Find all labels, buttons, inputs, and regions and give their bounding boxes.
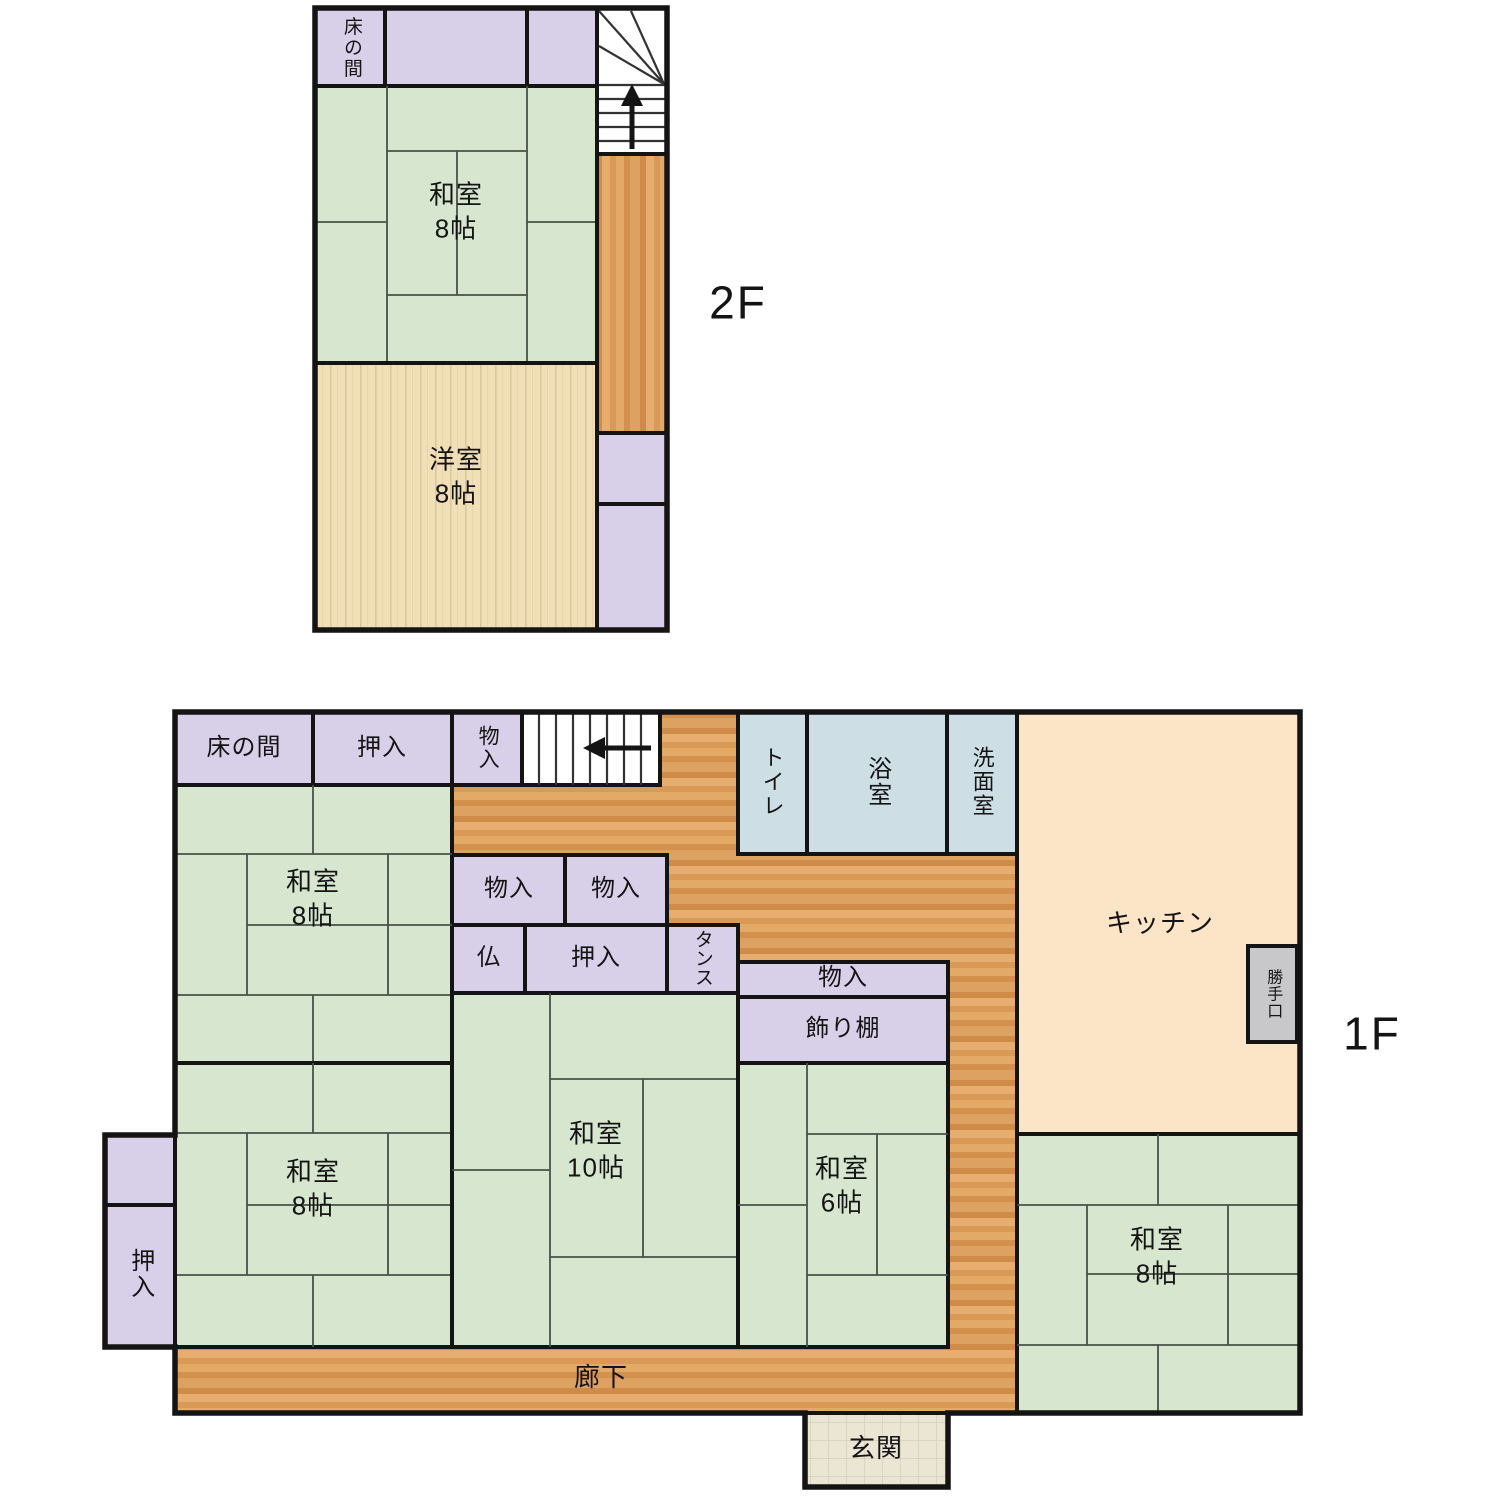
label-washitsu-6: 和室 6帖 <box>815 1152 869 1221</box>
label-rouka: 廊下 <box>574 1363 628 1393</box>
label-washroom: 洗面室 <box>969 746 994 818</box>
label-kitchen: キッチン <box>1106 909 1214 939</box>
corridor-2f <box>597 154 667 433</box>
corridor-1f-rouka <box>175 1347 948 1413</box>
floor-2f-plan <box>315 8 667 630</box>
room-name: 和室 <box>1130 1223 1184 1257</box>
label-tansu: タンス <box>691 930 713 987</box>
label-oshiire-top: 押入 <box>357 734 407 762</box>
room-size: 8帖 <box>1130 1257 1184 1291</box>
corridor-1f-beside-stairs <box>660 712 738 925</box>
room-name: 和室 <box>815 1152 869 1186</box>
label-washitsu-10: 和室 10帖 <box>567 1117 625 1186</box>
room-size: 8帖 <box>286 899 340 933</box>
room-size: 10帖 <box>567 1151 625 1185</box>
closet-2f-middle <box>385 8 527 86</box>
closet-2f-right <box>527 8 597 86</box>
closet-left-small <box>105 1135 175 1205</box>
label-youshitsu-2f: 洋室 8帖 <box>429 443 483 512</box>
label-monoiri-center: 物入 <box>818 964 868 992</box>
room-size: 8帖 <box>429 212 483 246</box>
floor-label-1f: 1F <box>1343 1008 1401 1061</box>
label-washitsu-top-left: 和室 8帖 <box>286 865 340 934</box>
label-monoiri-a: 物入 <box>484 875 534 903</box>
label-bathroom: 浴室 <box>863 756 891 808</box>
label-tokonoma-2f: 床の間 <box>340 17 362 80</box>
label-kazaridana: 飾り棚 <box>806 1015 881 1043</box>
label-back-door: 勝手口 <box>1263 969 1281 1020</box>
room-size: 6帖 <box>815 1186 869 1220</box>
label-oshiire-mid: 押入 <box>571 944 621 972</box>
label-oshiire-left: 押入 <box>126 1248 154 1300</box>
room-name: 和室 <box>286 865 340 899</box>
label-genkan: 玄関 <box>849 1434 903 1464</box>
label-washitsu-bottom-left: 和室 8帖 <box>286 1155 340 1224</box>
closet-2f-side-b <box>597 504 667 630</box>
floor-1f-plan <box>105 712 1300 1487</box>
label-monoiri-top: 物入 <box>475 725 499 771</box>
floor-label-2f: 2F <box>709 277 767 330</box>
room-name: 和室 <box>286 1155 340 1189</box>
floor-plan-canvas: 床の間 和室 8帖 洋室 8帖 2F 床の間 押入 物入 トイレ 浴室 洗面室 … <box>0 0 1500 1500</box>
room-size: 8帖 <box>429 477 483 511</box>
corridor-1f-vertical <box>948 854 1017 1413</box>
room-name: 和室 <box>429 178 483 212</box>
closet-2f-side-a <box>597 433 667 504</box>
label-monoiri-b: 物入 <box>591 875 641 903</box>
room-name: 和室 <box>567 1117 625 1151</box>
room-size: 8帖 <box>286 1189 340 1223</box>
label-butsudan: 仏 <box>477 944 502 972</box>
label-toilet: トイレ <box>759 746 784 818</box>
label-washitsu-2f: 和室 8帖 <box>429 178 483 247</box>
label-tokonoma-1f: 床の間 <box>207 734 282 762</box>
label-washitsu-bottom-right: 和室 8帖 <box>1130 1223 1184 1292</box>
room-name: 洋室 <box>429 443 483 477</box>
